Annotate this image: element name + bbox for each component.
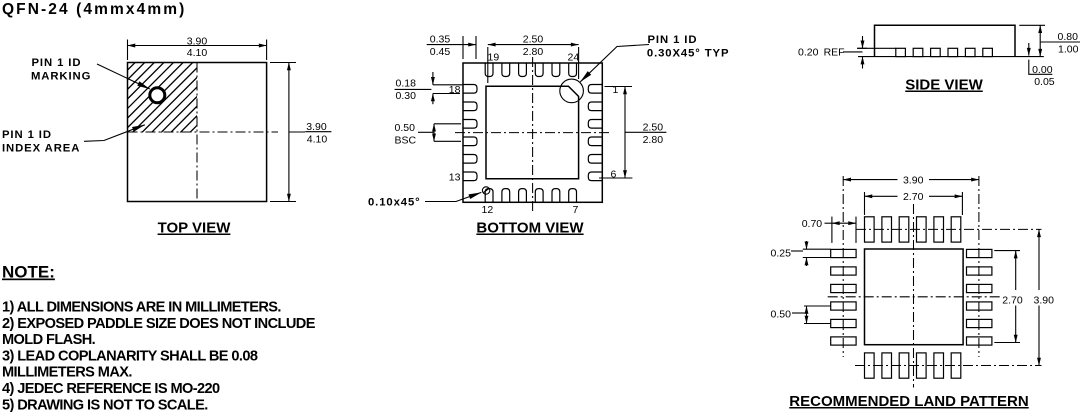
svg-text:3.90: 3.90 <box>1034 295 1055 307</box>
svg-text:MILLIMETERS MAX.: MILLIMETERS MAX. <box>2 365 132 381</box>
svg-text:0.00: 0.00 <box>1032 64 1053 76</box>
svg-text:2.70: 2.70 <box>1002 295 1023 307</box>
svg-text:3.90: 3.90 <box>306 121 327 133</box>
svg-text:1) ALL DIMENSIONS ARE IN MILLI: 1) ALL DIMENSIONS ARE IN MILLIMETERS. <box>2 300 281 316</box>
svg-text:12: 12 <box>482 204 494 216</box>
svg-text:2.80: 2.80 <box>523 46 544 58</box>
svg-text:BSC: BSC <box>395 135 417 147</box>
svg-text:4.10: 4.10 <box>307 134 328 146</box>
svg-text:3.90: 3.90 <box>187 36 208 48</box>
svg-text:0.30: 0.30 <box>396 90 417 102</box>
svg-text:7: 7 <box>573 204 579 216</box>
svg-text:0.45: 0.45 <box>430 46 451 58</box>
svg-text:4) JEDEC REFERENCE IS MO-220: 4) JEDEC REFERENCE IS MO-220 <box>2 381 220 397</box>
svg-text:0.70: 0.70 <box>802 218 823 230</box>
svg-text:SIDE VIEW: SIDE VIEW <box>905 77 983 94</box>
svg-text:3) LEAD COPLANARITY SHALL BE 0: 3) LEAD COPLANARITY SHALL BE 0.08 <box>2 348 258 364</box>
svg-text:0.35: 0.35 <box>430 34 451 46</box>
svg-text:13: 13 <box>449 172 461 184</box>
svg-text:2.80: 2.80 <box>643 134 664 146</box>
svg-text:1.00: 1.00 <box>1058 43 1079 55</box>
svg-text:0.18: 0.18 <box>396 78 417 90</box>
svg-text:0.20: 0.20 <box>798 47 819 59</box>
svg-text:TOP VIEW: TOP VIEW <box>158 220 232 237</box>
svg-text:24: 24 <box>568 52 580 64</box>
svg-text:MOLD FLASH.: MOLD FLASH. <box>2 332 96 348</box>
svg-text:4.10: 4.10 <box>187 47 208 59</box>
svg-text:2) EXPOSED PADDLE SIZE DOES NO: 2) EXPOSED PADDLE SIZE DOES NOT INCLUDE <box>2 316 316 332</box>
svg-text:0.30X45° TYP: 0.30X45° TYP <box>647 48 730 60</box>
svg-text:0.80: 0.80 <box>1058 31 1079 43</box>
svg-text:0.50: 0.50 <box>395 122 416 134</box>
svg-text:BOTTOM VIEW: BOTTOM VIEW <box>476 220 584 237</box>
svg-text:QFN-24 (4mmx4mm): QFN-24 (4mmx4mm) <box>2 1 186 18</box>
svg-text:PIN 1 ID: PIN 1 ID <box>2 129 52 141</box>
svg-text:0.25: 0.25 <box>771 247 792 259</box>
svg-text:1: 1 <box>613 84 619 96</box>
svg-text:MARKING: MARKING <box>31 71 91 83</box>
svg-text:REF: REF <box>824 47 845 59</box>
svg-text:2.50: 2.50 <box>643 121 664 133</box>
svg-text:2.70: 2.70 <box>903 191 924 203</box>
svg-text:3.90: 3.90 <box>903 175 924 187</box>
svg-text:18: 18 <box>449 84 461 96</box>
svg-text:PIN 1 ID: PIN 1 ID <box>32 57 82 69</box>
svg-text:NOTE:: NOTE: <box>2 263 55 282</box>
svg-text:RECOMMENDED LAND PATTERN: RECOMMENDED LAND PATTERN <box>789 393 1028 410</box>
svg-text:5) DRAWING IS NOT TO SCALE.: 5) DRAWING IS NOT TO SCALE. <box>2 397 208 412</box>
svg-text:19: 19 <box>488 52 500 64</box>
svg-text:0.05: 0.05 <box>1034 76 1055 88</box>
svg-text:0.10x45°: 0.10x45° <box>368 197 421 209</box>
svg-text:6: 6 <box>611 168 617 180</box>
svg-text:0.50: 0.50 <box>771 308 792 320</box>
svg-text:PIN 1 ID: PIN 1 ID <box>648 34 698 46</box>
svg-text:INDEX AREA: INDEX AREA <box>2 143 80 155</box>
svg-text:2.50: 2.50 <box>523 34 544 46</box>
